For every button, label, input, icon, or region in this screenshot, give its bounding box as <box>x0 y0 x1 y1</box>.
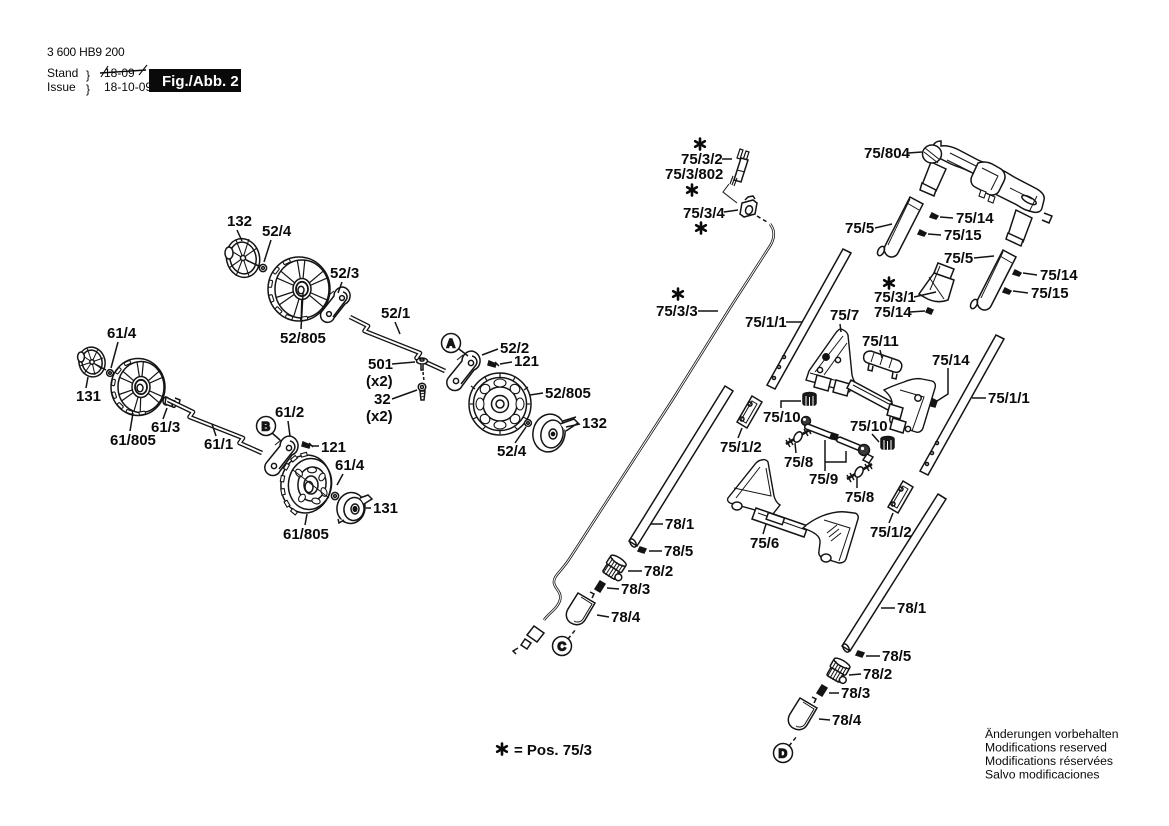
svg-text:75/3/802: 75/3/802 <box>665 166 723 183</box>
svg-text:75/14: 75/14 <box>932 352 970 369</box>
svg-text:121: 121 <box>321 439 346 456</box>
svg-text:75/14: 75/14 <box>874 304 912 321</box>
svg-text:75/9: 75/9 <box>809 471 838 488</box>
svg-text:78/1: 78/1 <box>897 600 926 617</box>
svg-text:75/804: 75/804 <box>864 145 911 162</box>
svg-text:75/14: 75/14 <box>1040 267 1078 284</box>
svg-text:32: 32 <box>374 391 391 408</box>
svg-text:52/4: 52/4 <box>497 443 527 460</box>
svg-text:131: 131 <box>373 500 398 517</box>
svg-text:61/4: 61/4 <box>107 325 137 342</box>
svg-text:18-10-09: 18-10-09 <box>104 80 152 94</box>
svg-text:D: D <box>779 747 788 761</box>
svg-text:61/805: 61/805 <box>283 526 329 543</box>
svg-text:75/3/4: 75/3/4 <box>683 205 725 222</box>
svg-text:75/5: 75/5 <box>944 250 973 267</box>
svg-text:121: 121 <box>514 353 539 370</box>
svg-text:75/1/2: 75/1/2 <box>720 439 762 456</box>
svg-text:75/14: 75/14 <box>956 210 994 227</box>
svg-text:52/3: 52/3 <box>330 265 359 282</box>
svg-text:61/1: 61/1 <box>204 436 233 453</box>
svg-text:78/2: 78/2 <box>863 666 892 683</box>
svg-text:Modifications reserved: Modifications reserved <box>985 741 1107 755</box>
svg-text:B: B <box>262 420 271 434</box>
svg-text:61/4: 61/4 <box>335 457 365 474</box>
svg-text:75/15: 75/15 <box>1031 285 1069 302</box>
svg-text:61/3: 61/3 <box>151 419 180 436</box>
svg-text:78/5: 78/5 <box>882 648 911 665</box>
svg-text:75/6: 75/6 <box>750 535 779 552</box>
svg-text:75/15: 75/15 <box>944 227 982 244</box>
svg-text:78/3: 78/3 <box>841 685 870 702</box>
svg-text:132: 132 <box>227 213 252 230</box>
svg-text:C: C <box>558 640 567 654</box>
svg-text:78/3: 78/3 <box>621 581 650 598</box>
svg-text:(x2): (x2) <box>366 373 393 390</box>
svg-text:75/5: 75/5 <box>845 220 874 237</box>
svg-text:61/805: 61/805 <box>110 432 156 449</box>
svg-text:52/4: 52/4 <box>262 223 292 240</box>
svg-text:Stand: Stand <box>47 66 78 80</box>
svg-text:A: A <box>447 337 456 351</box>
svg-text:132: 132 <box>582 415 607 432</box>
svg-text:75/1/2: 75/1/2 <box>870 524 912 541</box>
svg-text:75/3/3: 75/3/3 <box>656 303 698 320</box>
svg-text:Fig./Abb. 2: Fig./Abb. 2 <box>162 73 239 90</box>
svg-text:Änderungen vorbehalten: Änderungen vorbehalten <box>985 727 1119 741</box>
svg-text:61/2: 61/2 <box>275 404 304 421</box>
svg-text:78/4: 78/4 <box>611 609 641 626</box>
svg-text:75/11: 75/11 <box>862 333 899 350</box>
svg-text:52/805: 52/805 <box>545 385 591 402</box>
svg-text:75/1/1: 75/1/1 <box>988 390 1030 407</box>
svg-text:501: 501 <box>368 356 393 373</box>
svg-text:75/10: 75/10 <box>850 418 888 435</box>
svg-text:78/2: 78/2 <box>644 563 673 580</box>
svg-text:Modifications réservées: Modifications réservées <box>985 754 1113 768</box>
svg-text:75/10: 75/10 <box>763 409 801 426</box>
svg-text:75/8: 75/8 <box>845 489 874 506</box>
svg-text:52/1: 52/1 <box>381 305 410 322</box>
svg-text:78/5: 78/5 <box>664 543 693 560</box>
svg-text:75/1/1: 75/1/1 <box>745 314 787 331</box>
svg-text:78/1: 78/1 <box>665 516 694 533</box>
svg-text:52/805: 52/805 <box>280 330 326 347</box>
svg-text:Issue: Issue <box>47 80 76 94</box>
svg-text:131: 131 <box>76 388 101 405</box>
svg-text:}: } <box>86 82 90 96</box>
svg-text:3 600 HB9 200: 3 600 HB9 200 <box>47 45 125 59</box>
svg-text:}: } <box>86 68 90 82</box>
svg-text:Salvo modificaciones: Salvo modificaciones <box>985 768 1099 782</box>
svg-text:75/8: 75/8 <box>784 454 813 471</box>
svg-text:75/7: 75/7 <box>830 307 859 324</box>
svg-text:(x2): (x2) <box>366 408 393 425</box>
svg-text:78/4: 78/4 <box>832 712 862 729</box>
svg-text:= Pos. 75/3: = Pos. 75/3 <box>514 742 592 759</box>
